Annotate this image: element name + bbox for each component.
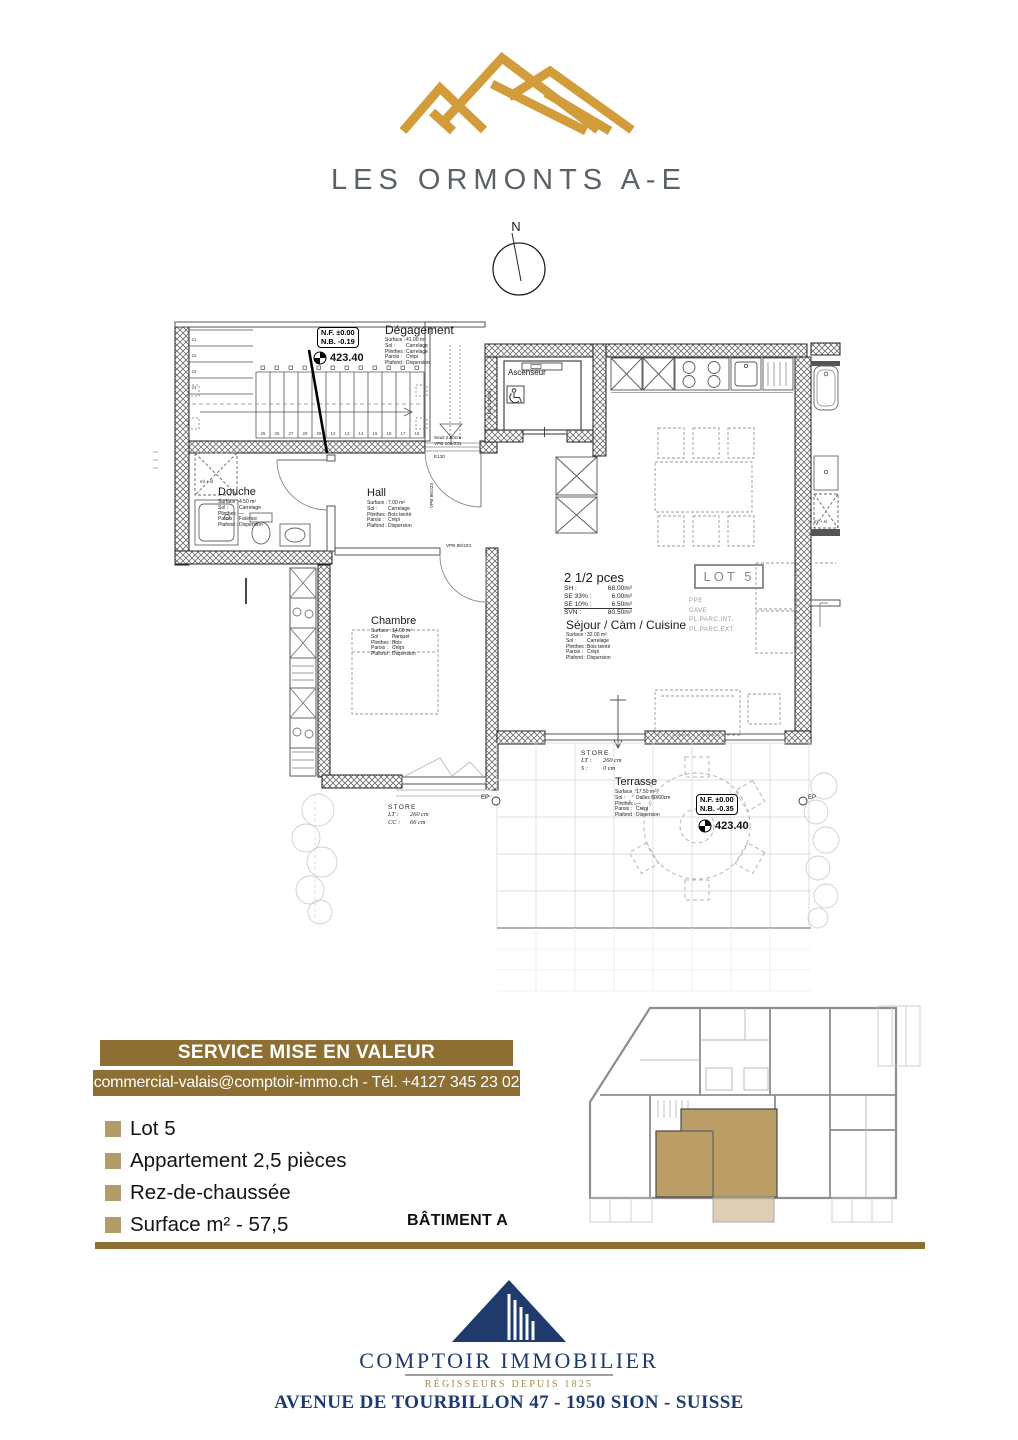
washer-dryer-label-neighbor: ml + sl <box>814 519 827 525</box>
neighbor-wall-bands <box>811 361 840 536</box>
svg-text:16: 16 <box>387 431 392 436</box>
neighbor-bathroom <box>814 366 838 528</box>
brand-tagline: RÉGISSEURS DEPUIS 1825 <box>0 1379 1018 1390</box>
list-item-apartment: Appartement 2,5 pièces <box>105 1149 347 1173</box>
door-code-label: E130 <box>434 454 445 460</box>
floor-plan: 21 22 23 24 25 26 27 28 29 12 13 14 15 1… <box>153 322 840 991</box>
technical-column <box>290 568 316 776</box>
svg-text:N: N <box>511 219 520 234</box>
site-plan-lot5-highlight <box>656 1109 777 1197</box>
altitude-entrance: 423.40 <box>313 351 364 365</box>
kitchen-fixtures <box>556 358 793 533</box>
list-item-floor: Rez-de-chaussée <box>105 1181 291 1205</box>
site-plan-lot5-terrace <box>713 1197 774 1222</box>
brand-underline <box>405 1374 613 1376</box>
store-label-left: STORE LT :260 cm CC :66 cm <box>388 804 429 827</box>
altitude-terrace: 423.40 <box>698 819 749 833</box>
hedges <box>292 773 839 928</box>
room-terrasse: Terrasse Surface :17.50 m² Sol :Dalles 6… <box>615 777 670 819</box>
svg-text:27: 27 <box>289 431 294 436</box>
list-item-surface: Surface m² - 57,5 <box>105 1213 288 1237</box>
bullet-square-icon <box>105 1217 121 1233</box>
bullet-square-icon <box>105 1185 121 1201</box>
room-sejour: Séjour / Càm / Cuisine Surface :32.00 m²… <box>566 620 686 662</box>
lot-number-box: LOT 5 <box>694 564 764 589</box>
ep-label-right: EP <box>808 796 816 802</box>
service-banner: SERVICE MISE EN VALEUR <box>100 1040 513 1066</box>
bullet-square-icon <box>105 1121 121 1137</box>
room-chambre: Chambre Surface :14.00 m² Sol :Parquet P… <box>371 616 416 658</box>
level-marker-icon <box>313 351 327 365</box>
lot-items: PPE CAVE PL.PARC.INT. PL.PARC.EXT. <box>689 596 735 634</box>
svg-text:21: 21 <box>192 337 197 342</box>
svg-text:26: 26 <box>275 431 280 436</box>
svg-text:12: 12 <box>331 431 336 436</box>
ep-label-left: EP <box>481 796 489 802</box>
svg-text:23: 23 <box>192 369 197 374</box>
svg-text:14: 14 <box>359 431 364 436</box>
threshold-label: Seuil 2.50cmVPB 106/231 <box>434 435 462 446</box>
compass-icon: N <box>493 219 545 295</box>
svg-text:17: 17 <box>401 431 406 436</box>
flyer-page: N <box>0 0 1018 1440</box>
page-title: LES ORMONTS A-E <box>0 164 1018 197</box>
window-code-horizontal: VPB 86/223 <box>446 543 471 549</box>
list-item-lot: Lot 5 <box>105 1117 176 1141</box>
window-code-vertical: VPB 86/223 <box>429 483 435 508</box>
elevator-label: Ascenseur <box>508 368 546 377</box>
store-label-terrace: STORE LT :260 cm S :0 cm <box>581 750 622 773</box>
contact-banner: commercial-valais@comptoir-immo.ch - Tél… <box>93 1070 520 1096</box>
contact-text: commercial-valais@comptoir-immo.ch - Tél… <box>94 1074 520 1092</box>
svg-text:22: 22 <box>192 353 197 358</box>
level-box-entrance: N.F. ±0.00N.B. -0.19 <box>317 327 359 348</box>
svg-text:13: 13 <box>345 431 350 436</box>
room-hall: Hall Surface :7.00 m² Sol :Carrelage Pli… <box>367 488 412 530</box>
comptoir-logo-icon <box>452 1280 566 1342</box>
bullet-square-icon <box>105 1153 121 1169</box>
footer-divider <box>95 1242 925 1249</box>
room-degagement: Dégagement Surface :41.00 m² Sol :Carrel… <box>385 325 454 367</box>
svg-text:28: 28 <box>303 431 308 436</box>
svg-text:24: 24 <box>192 385 197 390</box>
svg-text:29: 29 <box>317 431 322 436</box>
brand-name: COMPTOIR IMMOBILIER <box>0 1348 1018 1374</box>
mountain-logo <box>403 58 632 131</box>
site-plan <box>590 1006 920 1222</box>
room-douche: Douche Surface :4.50 m² Sol :Carrelage P… <box>218 487 263 529</box>
level-box-terrace: N.F. ±0.00N.B. -0.35 <box>696 794 738 815</box>
level-marker-icon <box>698 819 712 833</box>
building-label: BÂTIMENT A <box>407 1212 508 1230</box>
svg-text:25: 25 <box>261 431 266 436</box>
washer-dryer-label: ml + sl <box>200 479 213 485</box>
apartment-stats: 2 1/2 pces SH :68.00m² SE 33% :6.00m² SE… <box>564 572 632 617</box>
svg-text:15: 15 <box>373 431 378 436</box>
elevator-height-label: S. brut 12.06m <box>487 389 493 420</box>
brand-address: AVENUE DE TOURBILLON 47 - 1950 SION - SU… <box>0 1392 1018 1414</box>
svg-text:18: 18 <box>415 431 420 436</box>
